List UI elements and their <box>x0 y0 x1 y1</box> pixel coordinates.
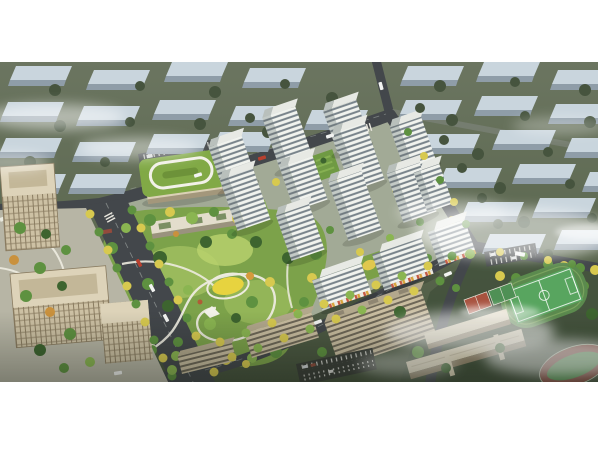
aerial-rendering-photo <box>0 62 598 382</box>
rendering-canvas <box>0 0 600 450</box>
bottom-vignette <box>0 312 598 382</box>
office-tower-north <box>0 163 60 251</box>
masterplan-svg <box>0 62 598 382</box>
